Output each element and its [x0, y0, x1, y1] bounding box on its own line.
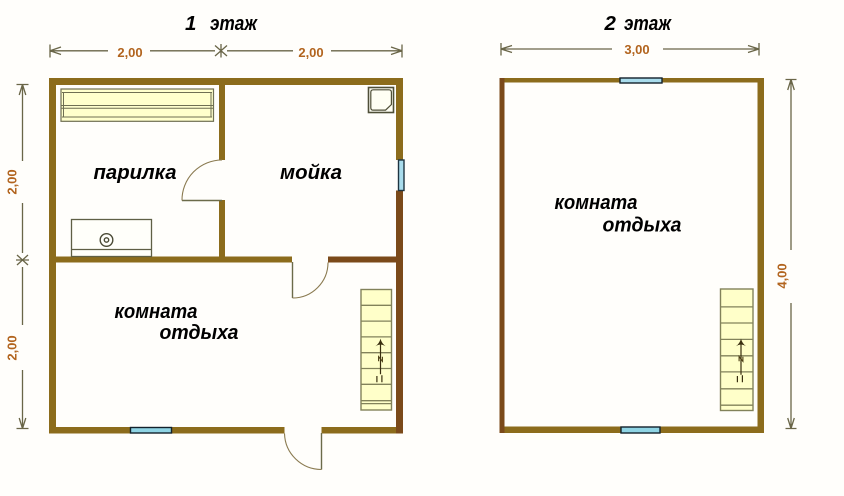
- svg-text:отдыха: отдыха: [160, 322, 239, 344]
- svg-text:1: 1: [185, 12, 196, 35]
- svg-text:2,00: 2,00: [298, 45, 323, 60]
- svg-text:4,00: 4,00: [775, 263, 790, 288]
- svg-text:мойка: мойка: [280, 162, 342, 184]
- svg-text:2,00: 2,00: [5, 335, 20, 360]
- svg-text:2,00: 2,00: [117, 45, 142, 60]
- svg-text:парилка: парилка: [94, 162, 177, 184]
- svg-text:3,00: 3,00: [624, 42, 649, 57]
- svg-text:2,00: 2,00: [5, 169, 20, 194]
- svg-text:отдыха: отдыха: [603, 215, 682, 237]
- svg-text:2: 2: [604, 12, 617, 35]
- svg-text:этаж: этаж: [210, 12, 258, 35]
- svg-text:этаж: этаж: [624, 12, 672, 35]
- svg-text:комната: комната: [555, 192, 638, 214]
- svg-text:комната: комната: [115, 301, 198, 323]
